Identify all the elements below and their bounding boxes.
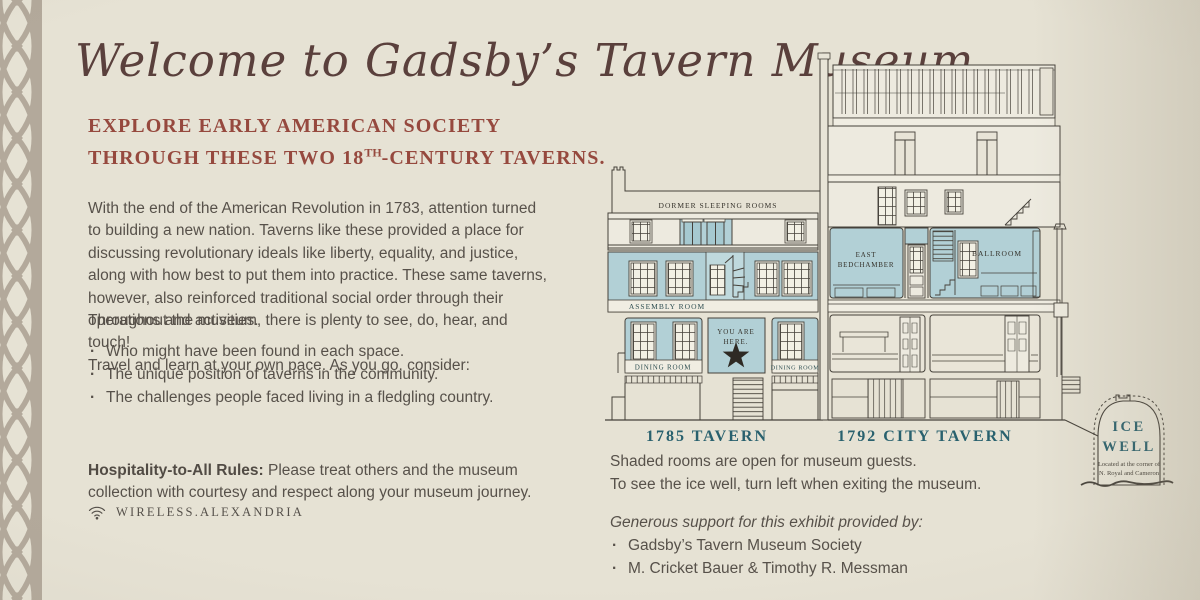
list-item: The challenges people faced living in a … bbox=[88, 386, 550, 409]
caption-1785-tavern: 1785 TAVERN bbox=[646, 428, 768, 445]
hospitality-rules-lead: Hospitality-to-All Rules: bbox=[88, 462, 264, 479]
tavern-cross-section-diagram: DORMER SLEEPING ROOMS ASSEMBLY ROOM DINI… bbox=[585, 45, 1200, 505]
list-item: The unique position of taverns in the co… bbox=[88, 363, 550, 386]
shaded-rooms-note: Shaded rooms are open for museum guests.… bbox=[610, 450, 981, 496]
ballroom-label: BALLROOM bbox=[972, 249, 1022, 258]
east-bedchamber-label: EAST bbox=[856, 251, 877, 259]
caption-1792-city-tavern: 1792 CITY TAVERN bbox=[837, 428, 1012, 445]
intro-heading-line1: EXPLORE EARLY AMERICAN SOCIETY bbox=[88, 115, 501, 137]
support-credits: Generous support for this exhibit provid… bbox=[610, 511, 923, 580]
consider-list: Who might have been found in each space.… bbox=[88, 340, 550, 409]
wifi-network-name: WIRELESS.ALEXANDRIA bbox=[116, 505, 304, 520]
dining-room-left-label: DINING ROOM bbox=[635, 364, 691, 372]
list-item: Gadsby’s Tavern Museum Society bbox=[610, 534, 923, 557]
hospitality-rules: Hospitality-to-All Rules: Please treat o… bbox=[88, 460, 550, 505]
1792-tavern-section bbox=[818, 53, 1100, 437]
svg-text:BEDCHAMBER: BEDCHAMBER bbox=[838, 261, 895, 269]
ice-well-note: Located at the corner of bbox=[1098, 461, 1161, 468]
list-item: M. Cricket Bauer & Timothy R. Messman bbox=[610, 557, 923, 580]
supporter-list: Gadsby’s Tavern Museum Society M. Cricke… bbox=[610, 534, 923, 580]
ice-well-label: ICE bbox=[1112, 419, 1145, 435]
decorative-border bbox=[0, 0, 46, 600]
list-item: Who might have been found in each space. bbox=[88, 340, 550, 363]
dormer-sleeping-rooms-label: DORMER SLEEPING ROOMS bbox=[659, 201, 778, 210]
intro-heading: EXPLORE EARLY AMERICAN SOCIETY THROUGH T… bbox=[88, 113, 606, 171]
wifi-icon bbox=[88, 506, 106, 520]
assembly-room-label: ASSEMBLY ROOM bbox=[629, 302, 705, 311]
svg-text:WELL: WELL bbox=[1102, 439, 1156, 455]
svg-text:N. Royal and Cameron: N. Royal and Cameron bbox=[1099, 470, 1160, 477]
intro-heading-line2: THROUGH THESE TWO 18TH-CENTURY TAVERNS. bbox=[88, 147, 606, 169]
dining-room-right-label: DINING ROOM bbox=[771, 365, 820, 372]
support-heading: Generous support for this exhibit provid… bbox=[610, 511, 923, 534]
wifi-info: WIRELESS.ALEXANDRIA bbox=[88, 505, 304, 520]
you-are-here-label: YOU ARE bbox=[717, 328, 755, 336]
superscript-th: TH bbox=[364, 145, 381, 159]
